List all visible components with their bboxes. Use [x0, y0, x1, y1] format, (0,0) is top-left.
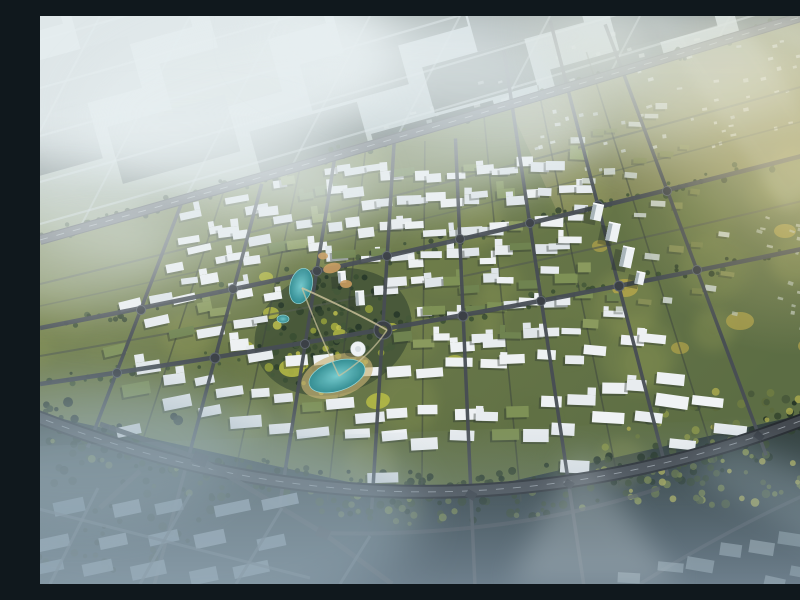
aerial-render-svg	[40, 16, 800, 584]
scene-root	[40, 16, 800, 584]
aerial-masterplan-rendering: Aerial bird's-eye rendering of a fan-sha…	[40, 16, 800, 584]
